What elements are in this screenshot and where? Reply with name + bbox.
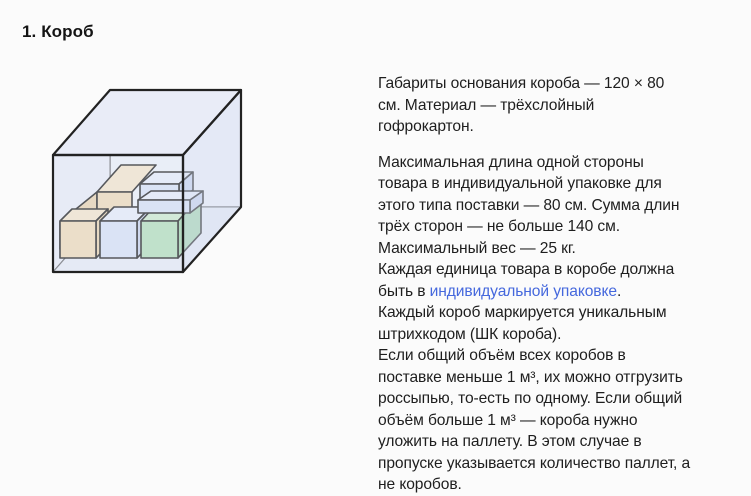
text-line: этого типа поставки — 80 см. Сумма длин — [378, 195, 730, 217]
text-line: объём больше 1 м³ — короба нужно — [378, 410, 730, 432]
glass-front-face — [53, 155, 183, 272]
text-line-with-link: быть в индивидуальной упаковке. — [378, 281, 730, 303]
text-line: пропуске указывается количество паллет, … — [378, 453, 730, 475]
individual-packaging-link[interactable]: индивидуальной упаковке — [430, 283, 617, 300]
link-suffix-text: . — [617, 283, 621, 300]
link-prefix-text: быть в — [378, 283, 430, 300]
text-line: не коробов. — [378, 474, 730, 496]
glass-box-front-faces — [53, 90, 241, 272]
text-line: товара в индивидуальной упаковке для — [378, 173, 730, 195]
text-line: уложить на паллету. В этом случае в — [378, 431, 730, 453]
article-text: Габариты основания короба — 120 × 80 см.… — [378, 73, 730, 496]
paragraph-rules: Максимальная длина одной стороны товара … — [378, 152, 730, 496]
text-line: поставке меньше 1 м³, их можно отгрузить — [378, 367, 730, 389]
text-line: Габариты основания короба — 120 × 80 — [378, 73, 730, 95]
text-line: Каждая единица товара в коробе должна — [378, 259, 730, 281]
text-line: трёх сторон — не больше 140 см. — [378, 216, 730, 238]
text-line: Максимальный вес — 25 кг. — [378, 238, 730, 260]
text-line: штрихкодом (ШК короба). — [378, 324, 730, 346]
text-line: Максимальная длина одной стороны — [378, 152, 730, 174]
text-line: Каждый короб маркируется уникальным — [378, 302, 730, 324]
text-line: см. Материал — трёхслойный — [378, 95, 730, 117]
paragraph-dimensions: Габариты основания короба — 120 × 80 см.… — [378, 73, 730, 138]
text-line: россыпью, то-есть по одному. Если общий — [378, 388, 730, 410]
text-line: гофрокартон. — [378, 116, 730, 138]
text-line: Если общий объём всех коробов в — [378, 345, 730, 367]
